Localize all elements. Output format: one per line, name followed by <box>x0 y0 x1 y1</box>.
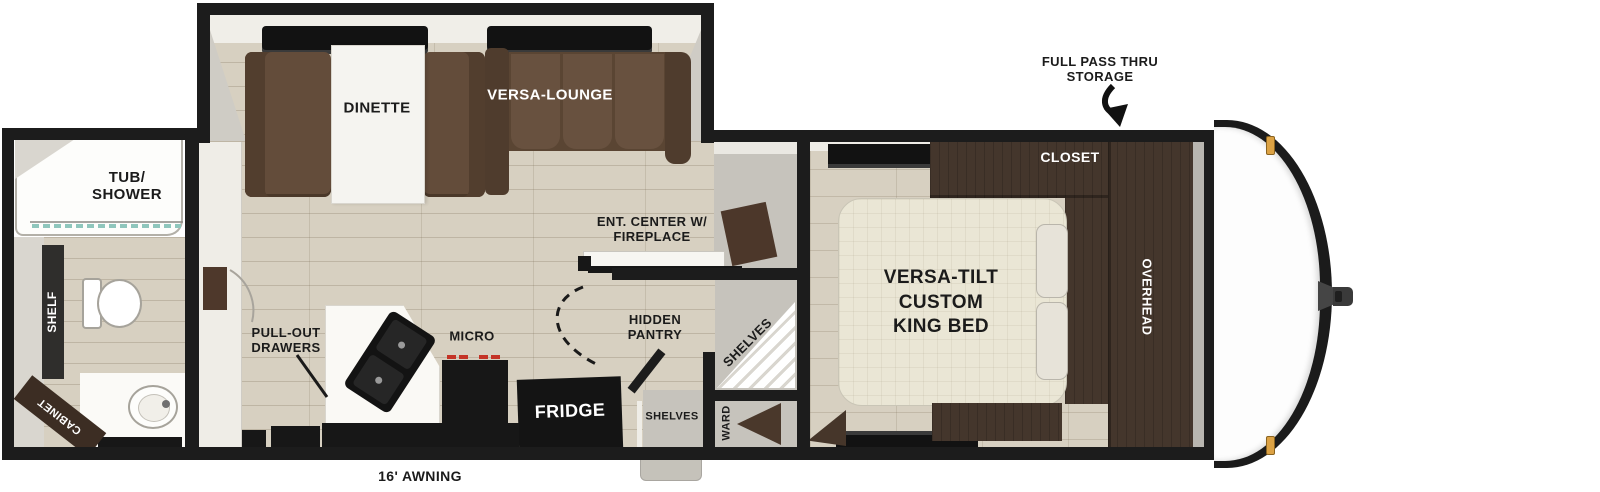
faucet <box>162 400 170 408</box>
bathroom-wall-top <box>2 128 198 140</box>
ent-center-speaker <box>578 256 591 271</box>
slideout-wall-top <box>197 3 714 15</box>
ent-nook-highlight <box>714 142 797 154</box>
hitch-notch <box>1335 291 1342 302</box>
label-pantry-shelves: SHELVES <box>645 411 698 424</box>
base-cabinet <box>271 426 320 447</box>
entry-step <box>640 459 702 481</box>
slideout-wall-left <box>197 3 210 143</box>
passthru-floor-strip <box>1193 142 1204 447</box>
burner-indicator <box>491 355 500 359</box>
bathroom-door <box>203 267 227 310</box>
vanity-base <box>98 437 182 447</box>
exterior-wall-bottom <box>2 447 1214 460</box>
exterior-wall-top <box>701 130 1214 142</box>
lounge-window <box>487 26 652 54</box>
bathroom-wall-left <box>2 128 14 459</box>
versa-lounge-chaise-arm <box>485 48 509 195</box>
passthru-wall <box>1204 142 1214 447</box>
dinette-bench-right <box>423 52 485 197</box>
toilet-bowl <box>97 279 142 328</box>
vanity-sink-bowl <box>138 394 170 422</box>
bedroom-divider-wall <box>797 142 810 447</box>
label-fridge: FRIDGE <box>534 400 605 423</box>
ent-center-wall <box>612 268 805 280</box>
label-awning: 16' AWNING <box>378 469 462 485</box>
dinette-bench-left <box>245 52 331 197</box>
pillow <box>1036 224 1068 298</box>
label-pull-out-drawers: PULL-OUT DRAWERS <box>251 326 320 356</box>
versa-lounge-arm-right <box>665 52 691 164</box>
label-micro: MICRO <box>449 330 494 345</box>
range-microwave <box>442 360 508 423</box>
full-pass-thru-arrow <box>1105 86 1115 114</box>
dinette-table <box>331 45 425 204</box>
marker-light-bottom <box>1266 436 1275 455</box>
bed-footboard <box>932 403 1062 441</box>
label-closet: CLOSET <box>1040 150 1099 166</box>
label-shelf: SHELF <box>46 291 60 332</box>
label-ent-center: ENT. CENTER W/ FIREPLACE <box>597 215 707 245</box>
headboard-cabinet <box>1065 198 1108 404</box>
slideout-wall-right <box>701 3 714 143</box>
pillow <box>1036 302 1068 380</box>
label-hidden-pantry: HIDDEN PANTRY <box>628 313 682 343</box>
label-king-bed: VERSA-TILT CUSTOM KING BED <box>884 266 998 340</box>
burner-indicator <box>447 355 456 359</box>
marker-light-top <box>1266 136 1275 155</box>
full-pass-thru-arrowhead <box>1104 104 1128 127</box>
versa-lounge-cushion <box>615 54 664 149</box>
burner-indicator <box>459 355 468 359</box>
floorplan-canvas: TUB/ SHOWER SHELF CABINET DINETTE VERSA-… <box>0 0 1600 492</box>
label-dinette: DINETTE <box>344 99 411 116</box>
burner-indicator <box>479 355 488 359</box>
label-ward: WARD <box>721 405 734 440</box>
bathroom-wall-right <box>185 128 199 459</box>
label-versa-lounge: VERSA-LOUNGE <box>487 86 613 103</box>
label-full-pass-thru: FULL PASS THRU STORAGE <box>1042 55 1158 85</box>
pantry-wall-horizontal <box>703 390 803 401</box>
base-cabinet <box>322 423 519 449</box>
label-tub-shower: TUB/ SHOWER <box>92 169 162 203</box>
label-overhead: OVERHEAD <box>1139 259 1154 336</box>
pantry-jamb <box>637 401 642 447</box>
